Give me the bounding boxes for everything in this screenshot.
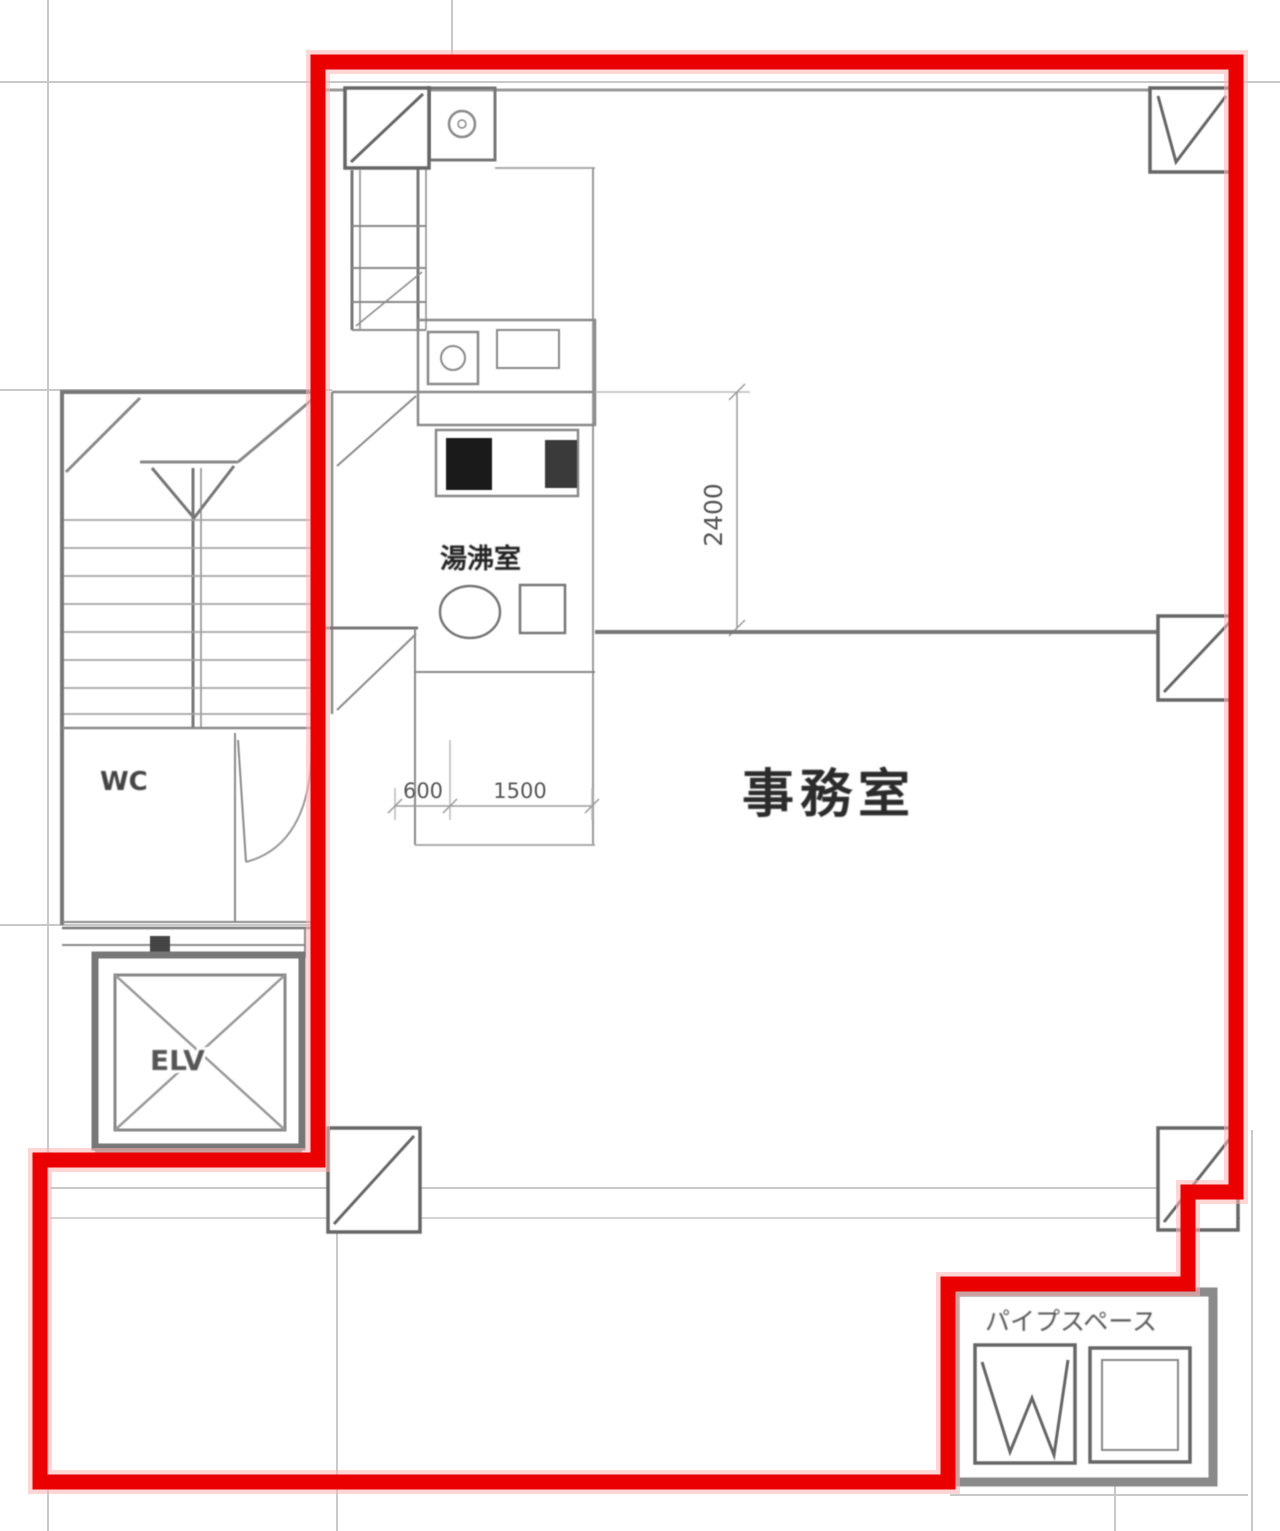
elevator-label: ELV xyxy=(150,1044,205,1077)
pipe-space-label: パイプスペース xyxy=(985,1307,1157,1336)
column-bottom-left xyxy=(328,1128,420,1232)
kitchenette-label: 湯沸室 xyxy=(440,543,521,575)
column-top-right xyxy=(1150,88,1234,172)
dim-width-right: 1500 xyxy=(493,779,546,803)
wc-label: WC xyxy=(100,767,148,797)
dim-depth: 2400 xyxy=(699,483,728,547)
floor-plan: 事務室 湯沸室 WC ELV パイプスペース 2400 600 1500 xyxy=(0,0,1280,1531)
column-top-left xyxy=(345,88,429,168)
dim-width-left: 600 xyxy=(403,779,443,803)
sink-basin xyxy=(446,438,492,490)
office-label: 事務室 xyxy=(742,765,916,825)
